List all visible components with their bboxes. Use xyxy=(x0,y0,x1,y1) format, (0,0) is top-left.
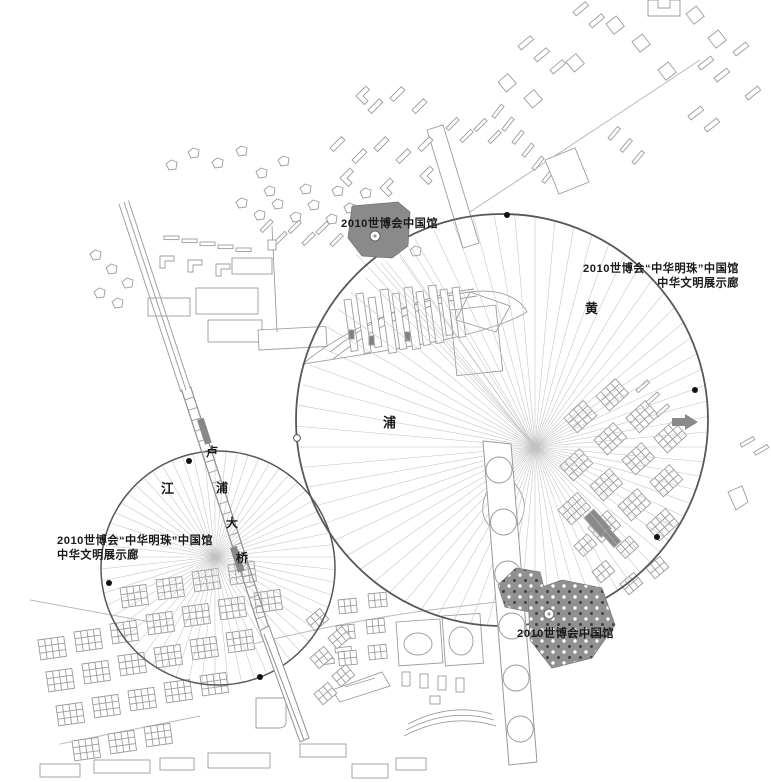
river-char-pu: 浦 xyxy=(383,415,396,430)
circle-dot-marker xyxy=(692,387,698,393)
label-bottom-pavilion: 2010世博会中国馆 xyxy=(517,626,614,640)
site-plan-page: 2010世博会中国馆 2010世博会“中华明珠”中国馆 中华文明展示廊 2010… xyxy=(0,0,771,782)
sight-line xyxy=(535,426,771,447)
bridge-rung xyxy=(222,512,231,515)
circle-dot-marker xyxy=(106,580,112,586)
label-right-gallery-line2: 中华文明展示廊 xyxy=(657,276,739,290)
bridge-char-lu: 卢 xyxy=(206,444,218,459)
sight-line xyxy=(535,365,761,447)
label-right-gallery-line1: 2010世博会“中华明珠”中国馆 xyxy=(583,261,739,275)
bridge-rung xyxy=(256,616,265,619)
bridge-rung xyxy=(205,460,214,463)
sight-line xyxy=(400,257,535,447)
expo-site-plan: 2010世博会中国馆 2010世博会“中华明珠”中国馆 中华文明展示廊 2010… xyxy=(0,0,771,782)
circle-dot-marker xyxy=(504,212,510,218)
circle-dot-marker xyxy=(654,534,660,540)
sight-line xyxy=(385,260,535,447)
sight-line xyxy=(317,346,535,447)
circle-ring-marker xyxy=(294,435,301,442)
bridge-edge xyxy=(181,389,259,629)
river-char-huang: 黄 xyxy=(585,301,598,316)
sight-line xyxy=(514,208,535,447)
sight-line xyxy=(87,500,215,557)
pavilion-marker-dot xyxy=(373,234,376,237)
china-pavilion-site-top xyxy=(348,202,410,258)
bridge-rung xyxy=(229,533,238,536)
river-char-jiang: 江 xyxy=(161,481,174,496)
circle-dot-marker xyxy=(186,458,192,464)
sight-line xyxy=(415,239,535,447)
sight-line xyxy=(535,346,753,447)
sight-line xyxy=(303,385,535,447)
sight-line xyxy=(327,327,535,447)
sight-line xyxy=(411,248,535,447)
bridge-rung xyxy=(209,470,218,473)
bridge-rung xyxy=(185,397,194,400)
circle-dot-marker xyxy=(257,674,263,680)
sight-line xyxy=(215,436,285,557)
bridge-char-pu: 浦 xyxy=(216,480,228,495)
label-left-gallery-line1: 2010世博会“中华明珠”中国馆 xyxy=(57,533,213,547)
bridge-char-qiao: 桥 xyxy=(236,550,249,565)
pavilion-marker-dot xyxy=(547,612,550,615)
sight-line xyxy=(473,215,535,447)
label-top-pavilion: 2010世博会中国馆 xyxy=(341,216,438,230)
sight-line xyxy=(535,208,556,447)
label-left-gallery-line2: 中华文明展示廊 xyxy=(57,548,139,562)
sight-line xyxy=(309,365,535,447)
bridge-char-da: 大 xyxy=(226,515,238,530)
bridge-rung xyxy=(188,407,197,410)
